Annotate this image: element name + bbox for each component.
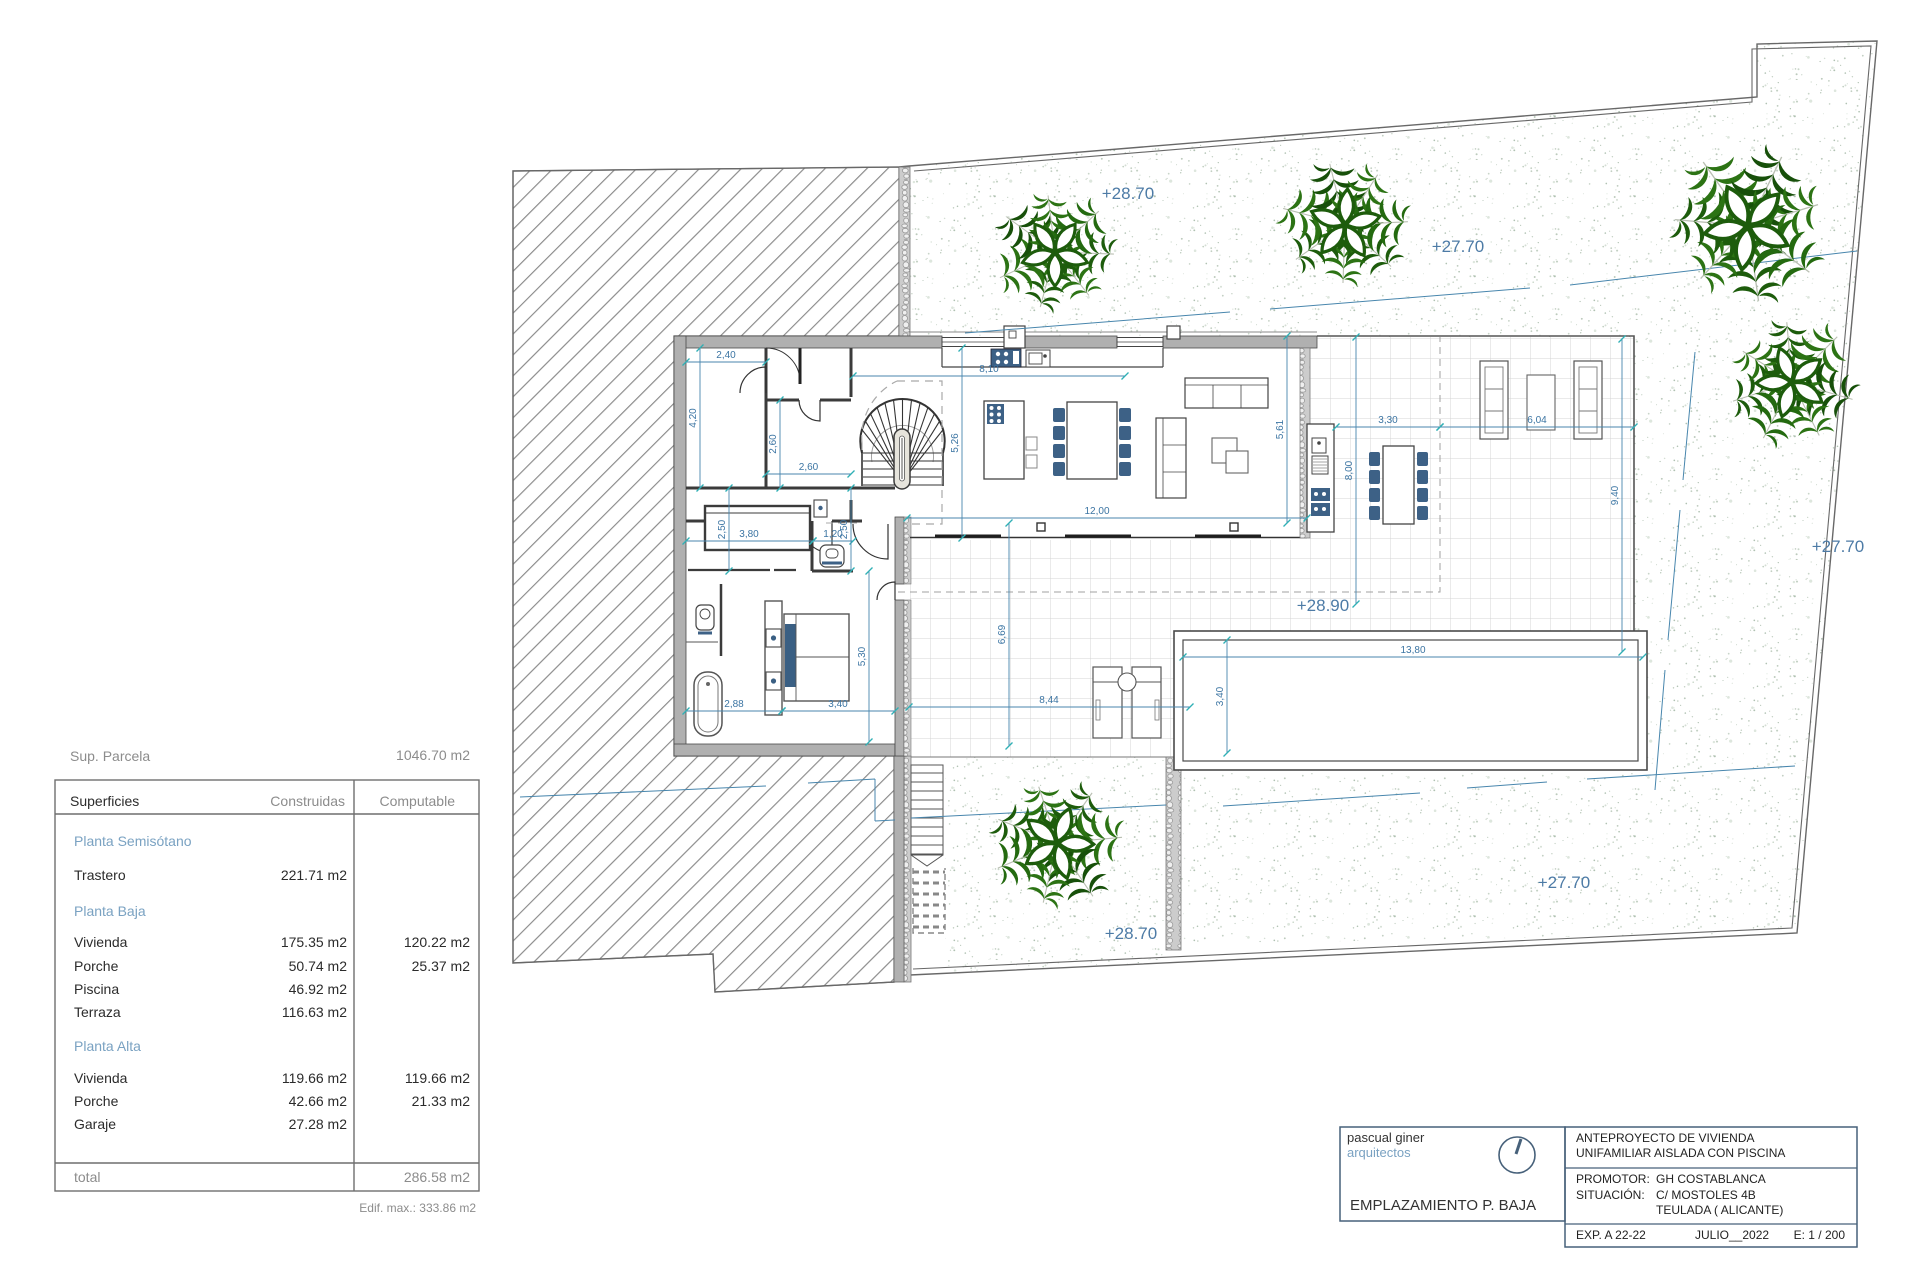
svg-text:12,00: 12,00	[1084, 506, 1109, 517]
svg-text:Porche: Porche	[74, 958, 119, 974]
svg-text:8,44: 8,44	[1039, 695, 1059, 706]
svg-text:116.63 m2: 116.63 m2	[282, 1004, 347, 1020]
svg-text:Computable: Computable	[380, 793, 456, 809]
svg-text:6,04: 6,04	[1527, 415, 1547, 426]
svg-text:Terraza: Terraza	[74, 1004, 121, 1020]
svg-text:175.35 m2: 175.35 m2	[281, 934, 347, 950]
svg-text:+27.70: +27.70	[1538, 873, 1590, 892]
svg-text:119.66 m2: 119.66 m2	[282, 1070, 347, 1086]
svg-text:GH COSTABLANCA: GH COSTABLANCA	[1656, 1172, 1766, 1186]
svg-text:+28.90: +28.90	[1297, 596, 1349, 615]
svg-text:13,80: 13,80	[1400, 645, 1425, 656]
svg-text:8,10: 8,10	[979, 364, 999, 375]
svg-text:46.92 m2: 46.92 m2	[289, 981, 348, 997]
svg-text:2,88: 2,88	[724, 699, 744, 710]
svg-text:2,60: 2,60	[799, 462, 819, 473]
svg-text:Vivienda: Vivienda	[74, 1070, 128, 1086]
svg-text:3,80: 3,80	[739, 529, 759, 540]
svg-text:Trastero: Trastero	[74, 867, 126, 883]
svg-text:2,50: 2,50	[839, 519, 850, 539]
svg-text:3,40: 3,40	[828, 699, 848, 710]
svg-text:5,30: 5,30	[857, 646, 868, 666]
svg-text:Superficies: Superficies	[70, 793, 139, 809]
svg-text:pascual giner: pascual giner	[1347, 1130, 1425, 1145]
svg-text:2,40: 2,40	[716, 350, 736, 361]
svg-text:+28.70: +28.70	[1105, 924, 1157, 943]
svg-text:+27.70: +27.70	[1812, 537, 1864, 556]
svg-text:6,69: 6,69	[997, 624, 1008, 644]
svg-text:UNIFAMILIAR AISLADA CON PISCIN: UNIFAMILIAR AISLADA CON PISCINA	[1576, 1146, 1785, 1160]
svg-text:221.71 m2: 221.71 m2	[281, 867, 347, 883]
svg-text:2,60: 2,60	[768, 434, 779, 454]
svg-text:Edif. max.: 333.86 m2: Edif. max.: 333.86 m2	[359, 1201, 476, 1215]
svg-text:Planta Alta: Planta Alta	[74, 1038, 141, 1054]
svg-text:5,61: 5,61	[1275, 419, 1286, 439]
svg-text:286.58 m2: 286.58 m2	[404, 1169, 470, 1185]
svg-text:5,26: 5,26	[950, 433, 961, 453]
svg-text:C/ MOSTOLES 4B: C/ MOSTOLES 4B	[1656, 1188, 1756, 1202]
svg-text:42.66 m2: 42.66 m2	[289, 1093, 348, 1109]
svg-text:50.74 m2: 50.74 m2	[289, 958, 348, 974]
svg-text:EMPLAZAMIENTO P. BAJA: EMPLAZAMIENTO P. BAJA	[1350, 1197, 1536, 1214]
svg-text:Planta Baja: Planta Baja	[74, 903, 146, 919]
svg-text:EXP. A 22-22: EXP. A 22-22	[1576, 1228, 1646, 1242]
svg-text:Piscina: Piscina	[74, 981, 119, 997]
svg-text:E: 1 / 200: E: 1 / 200	[1794, 1228, 1846, 1242]
svg-text:21.33 m2: 21.33 m2	[412, 1093, 471, 1109]
svg-text:3,30: 3,30	[1378, 415, 1398, 426]
svg-text:Planta Semisótano: Planta Semisótano	[74, 833, 192, 849]
svg-text:TEULADA ( ALICANTE): TEULADA ( ALICANTE)	[1656, 1203, 1783, 1217]
svg-text:JULIO__2022: JULIO__2022	[1695, 1228, 1769, 1242]
svg-text:SITUACIÓN:: SITUACIÓN:	[1576, 1187, 1645, 1202]
svg-text:27.28 m2: 27.28 m2	[289, 1116, 348, 1132]
svg-text:Construidas: Construidas	[270, 793, 345, 809]
svg-text:3,40: 3,40	[1215, 686, 1226, 706]
svg-text:Garaje: Garaje	[74, 1116, 116, 1132]
svg-text:119.66 m2: 119.66 m2	[405, 1070, 470, 1086]
svg-text:25.37 m2: 25.37 m2	[412, 958, 471, 974]
svg-text:Sup. Parcela: Sup. Parcela	[70, 748, 150, 764]
svg-text:arquitectos: arquitectos	[1347, 1145, 1411, 1160]
svg-text:Porche: Porche	[74, 1093, 119, 1109]
svg-text:PROMOTOR:: PROMOTOR:	[1576, 1172, 1650, 1186]
svg-text:+28.70: +28.70	[1102, 184, 1154, 203]
svg-text:total: total	[74, 1169, 100, 1185]
svg-text:ANTEPROYECTO DE VIVIENDA: ANTEPROYECTO DE VIVIENDA	[1576, 1131, 1754, 1145]
svg-text:120.22 m2: 120.22 m2	[404, 934, 470, 950]
svg-text:9,40: 9,40	[1610, 485, 1621, 505]
svg-text:Vivienda: Vivienda	[74, 934, 128, 950]
svg-text:+27.70: +27.70	[1432, 237, 1484, 256]
svg-text:8,00: 8,00	[1344, 460, 1355, 480]
svg-text:4,20: 4,20	[688, 408, 699, 428]
svg-text:1046.70 m2: 1046.70 m2	[396, 747, 470, 763]
svg-text:2,50: 2,50	[717, 519, 728, 539]
